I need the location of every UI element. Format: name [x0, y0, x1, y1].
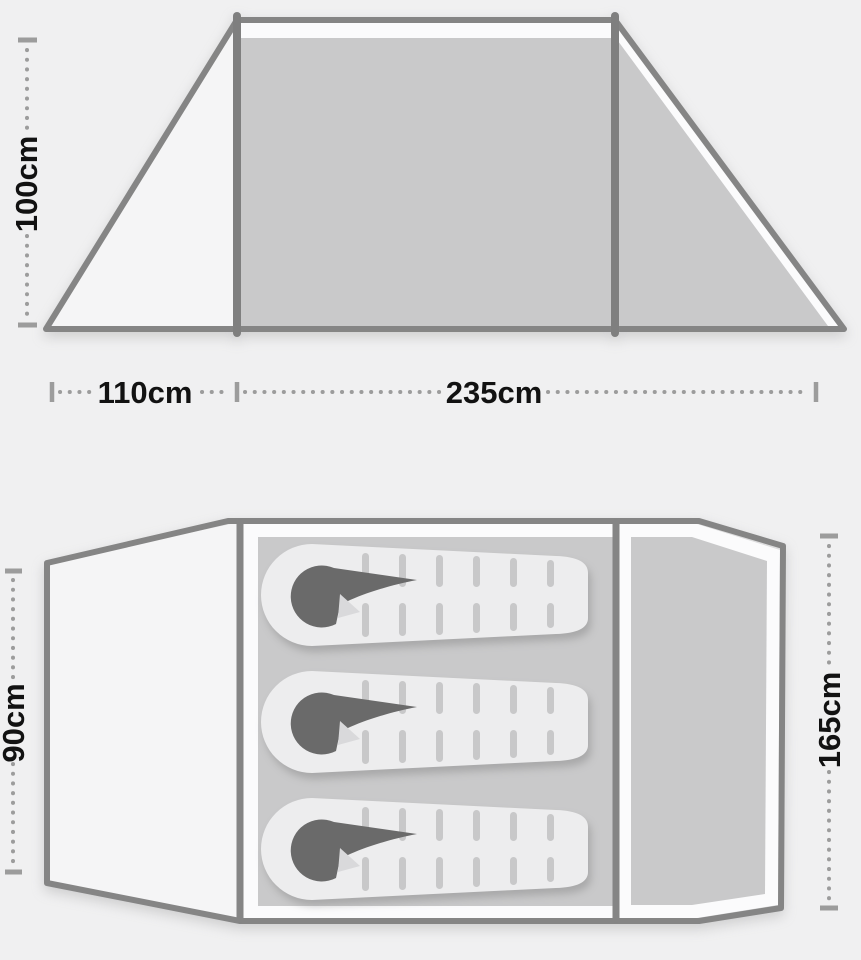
- porch-depth-label: 90cm: [0, 683, 31, 762]
- tent-dimensions-diagram: 100cm 110cm 235cm: [0, 0, 861, 960]
- width-dimensions: 110cm 235cm: [52, 375, 816, 410]
- inner-length-label: 165cm: [812, 672, 847, 769]
- tent-side-view: [46, 16, 844, 333]
- sleeping-bag-1: [261, 544, 588, 646]
- diagram-svg: 100cm 110cm 235cm: [0, 0, 861, 960]
- side-inner-panel: [241, 38, 612, 326]
- height-dimension-label: 100cm: [9, 136, 44, 233]
- side-rear-panel: [618, 41, 828, 326]
- porch-width-label: 110cm: [98, 375, 193, 410]
- inner-length-dimension: 165cm: [812, 536, 847, 908]
- sleeping-bag-3: [261, 798, 588, 900]
- body-width-label: 235cm: [446, 375, 543, 410]
- sleeping-bag-2: [261, 671, 588, 773]
- height-dimension: 100cm: [9, 40, 44, 325]
- plan-porch-area: [47, 522, 240, 921]
- plan-rear-floor: [631, 537, 767, 905]
- porch-depth-dimension: 90cm: [0, 571, 31, 872]
- tent-floor-plan: [47, 521, 783, 921]
